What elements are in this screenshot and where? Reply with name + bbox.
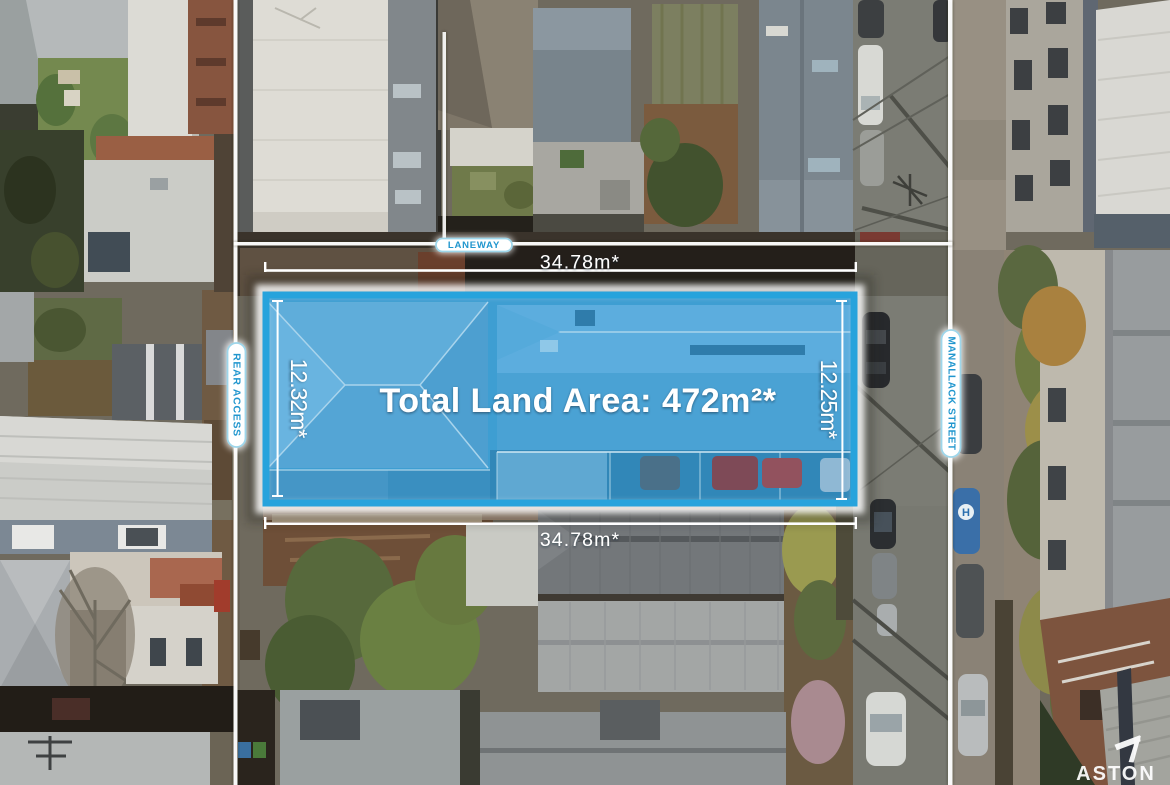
svg-text:ASTON: ASTON — [1076, 763, 1156, 785]
svg-text:MANALLACK STREET: MANALLACK STREET — [945, 336, 956, 450]
svg-text:12.32m*: 12.32m* — [286, 359, 312, 439]
svg-text:REAR ACCESS: REAR ACCESS — [231, 353, 243, 437]
svg-text:H: H — [962, 507, 970, 519]
svg-text:Total Land Area: 472m²*: Total Land Area: 472m²* — [380, 382, 777, 420]
svg-text:34.78m*: 34.78m* — [540, 529, 620, 551]
svg-text:34.78m*: 34.78m* — [540, 252, 620, 274]
svg-text:LANEWAY: LANEWAY — [448, 240, 500, 251]
svg-text:12.25m*: 12.25m* — [816, 360, 842, 440]
